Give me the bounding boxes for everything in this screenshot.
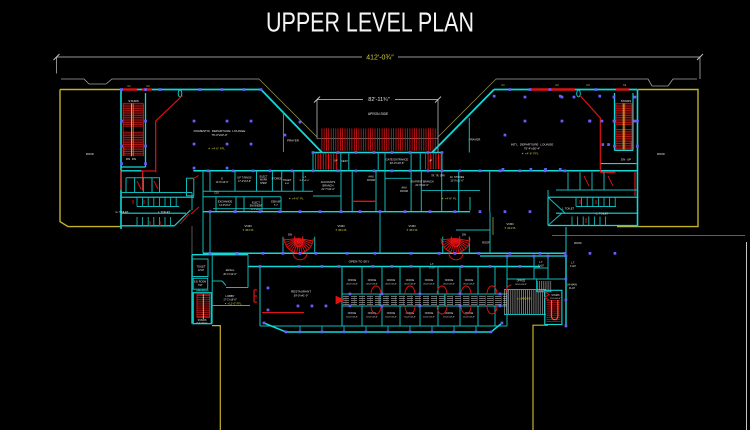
svg-text:20′-0″x13′-6″: 20′-0″x13′-6″ xyxy=(366,283,378,285)
svg-text:TOILET: TOILET xyxy=(283,179,292,182)
svg-text:✦ +4′-6″ PL: ✦ +4′-6″ PL xyxy=(442,197,457,201)
svg-text:✦ 344 PL: ✦ 344 PL xyxy=(504,226,516,230)
svg-text:ROOF: ROOF xyxy=(657,152,666,156)
svg-text:24′-0″x21′-0″: 24′-0″x21′-0″ xyxy=(415,184,429,187)
svg-text:L.T.: L.T. xyxy=(430,263,434,266)
svg-text:PRAYER: PRAYER xyxy=(469,138,481,142)
svg-text:C4: C4 xyxy=(623,83,627,87)
svg-text:STAIRS: STAIRS xyxy=(551,294,560,297)
svg-text:STAIRS: STAIRS xyxy=(128,99,139,103)
svg-text:DN: DN xyxy=(288,233,292,237)
svg-text:L. TOILET: L. TOILET xyxy=(158,210,171,214)
svg-text:✦ +4′-6″ PL: ✦ +4′-6″ PL xyxy=(289,197,304,201)
svg-text:13′-0″x21′-0″: 13′-0″x21′-0″ xyxy=(450,180,464,183)
svg-text:20′-0″x13′-6″: 20′-0″x13′-6″ xyxy=(463,283,475,285)
svg-text:1′x10′: 1′x10′ xyxy=(538,265,544,267)
svg-text:16′-0″x13′-6″: 16′-0″x13′-6″ xyxy=(346,316,358,318)
svg-text:C. TOILET: C. TOILET xyxy=(596,212,609,216)
svg-text:kitchen: kitchen xyxy=(226,268,235,272)
svg-text:TOILET: TOILET xyxy=(196,265,205,269)
svg-text:59′-0″x41′-0″: 59′-0″x41′-0″ xyxy=(294,293,309,297)
svg-text:16′-0″x13′-6″: 16′-0″x13′-6″ xyxy=(404,316,416,318)
svg-text:GATE ENTRANCE: GATE ENTRANCE xyxy=(386,158,409,162)
svg-text:L.T.: L.T. xyxy=(539,261,543,264)
svg-text:ENGINEER: ENGINEER xyxy=(250,205,263,208)
svg-text:16′-0″x13′-6″: 16′-0″x13′-6″ xyxy=(443,316,455,318)
svg-text:1′x10″: 1′x10″ xyxy=(429,267,435,269)
svg-text:82′-11¾″: 82′-11¾″ xyxy=(368,97,390,103)
svg-text:✦ +4′-6″ FFL: ✦ +4′-6″ FFL xyxy=(521,152,539,156)
svg-text:OFFICE: OFFICE xyxy=(387,280,396,282)
svg-text:DN UP: DN UP xyxy=(621,158,631,162)
svg-text:C1: C1 xyxy=(501,83,505,87)
svg-text:STAIRS: STAIRS xyxy=(198,319,207,322)
svg-text:PRAYER: PRAYER xyxy=(287,139,299,143)
svg-text:OFFICE: OFFICE xyxy=(425,313,434,315)
svg-text:10. STORES: 10. STORES xyxy=(450,176,465,179)
svg-text:14′-9″x9′-6″: 14′-9″x9′-6″ xyxy=(219,205,231,207)
svg-text:✦ 364 PL: ✦ 364 PL xyxy=(335,228,347,232)
svg-text:D: D xyxy=(221,177,223,181)
svg-text:ROOF: ROOF xyxy=(574,241,582,245)
svg-text:UPPER LEVEL PLAN: UPPER LEVEL PLAN xyxy=(266,7,474,38)
svg-text:12′x8′: 12′x8′ xyxy=(198,269,205,272)
svg-text:LOBBY: LOBBY xyxy=(226,294,235,298)
svg-text:UP T RINGS: UP T RINGS xyxy=(237,177,252,180)
svg-text:L.T.: L.T. xyxy=(303,176,307,179)
svg-text:21′-7″x21′-0″: 21′-7″x21′-0″ xyxy=(321,188,335,191)
svg-text:20′-0″x13′-6″: 20′-0″x13′-6″ xyxy=(404,283,416,285)
svg-text:C2: C2 xyxy=(555,83,559,87)
svg-text:L. TOILET: L. TOILET xyxy=(562,207,575,211)
svg-text:17′-4″x13′-6″: 17′-4″x13′-6″ xyxy=(238,181,251,183)
svg-text:G. TOILET: G. TOILET xyxy=(116,210,129,214)
svg-text:EXCHANGE: EXCHANGE xyxy=(218,200,233,204)
svg-text:1′x10′: 1′x10′ xyxy=(570,266,576,268)
svg-text:8′-0″x16′-0″: 8′-0″x16′-0″ xyxy=(196,323,207,325)
svg-text:20′-0″x13′-0″: 20′-0″x13′-0″ xyxy=(515,284,527,286)
svg-text:20′-0″x13′-6″: 20′-0″x13′-6″ xyxy=(385,283,397,285)
svg-text:✦ 364 PL: ✦ 364 PL xyxy=(242,228,254,232)
svg-text:16′-0″x13′-6″: 16′-0″x13′-6″ xyxy=(385,316,397,318)
svg-text:BRANCH: BRANCH xyxy=(323,184,334,188)
svg-text:16′-0″x13′-6″: 16′-0″x13′-6″ xyxy=(423,316,435,318)
svg-text:16′-0″x13′-6″: 16′-0″x13′-6″ xyxy=(366,316,378,318)
svg-text:C2: C2 xyxy=(146,84,150,88)
svg-text:DN DN: DN DN xyxy=(126,157,136,161)
svg-text:OFFICE: OFFICE xyxy=(387,313,396,315)
svg-text:OFFICE: OFFICE xyxy=(465,280,474,282)
svg-text:8′-0″x16′-0″: 8′-0″x16′-0″ xyxy=(550,298,561,300)
svg-text:OFFICE: OFFICE xyxy=(445,313,454,315)
svg-text:✦ +4′-6″ FFL: ✦ +4′-6″ FFL xyxy=(208,147,226,151)
svg-text:20′-1″x12′-0″: 20′-1″x12′-0″ xyxy=(223,273,237,276)
svg-text:SHOP: SHOP xyxy=(260,182,267,185)
svg-text:OPEN TO SKY: OPEN TO SKY xyxy=(349,260,370,264)
svg-text:GM FIRST BRANCH: GM FIRST BRANCH xyxy=(410,181,433,184)
svg-text:UP: UP xyxy=(429,159,433,163)
svg-text:ROOF: ROOF xyxy=(86,152,95,156)
svg-text:9′-0″x9′-0″: 9′-0″x9′-0″ xyxy=(300,180,310,182)
svg-text:OFFICE: OFFICE xyxy=(445,280,454,282)
svg-text:RESTAURANT: RESTAURANT xyxy=(291,290,311,294)
svg-text:ROOM: ROOM xyxy=(367,179,375,182)
svg-text:OFFICE: OFFICE xyxy=(406,280,415,282)
svg-text:412′-0¾″: 412′-0¾″ xyxy=(366,55,394,62)
svg-text:9′-0″: 9′-0″ xyxy=(274,205,279,207)
svg-text:20′-0″x13′-6″: 20′-0″x13′-6″ xyxy=(443,283,455,285)
svg-text:C1: C1 xyxy=(127,84,131,88)
svg-text:OFFICE: OFFICE xyxy=(425,280,434,282)
svg-text:VEST: VEST xyxy=(341,159,348,163)
svg-text:UP: UP xyxy=(334,159,338,163)
svg-text:ROOM: ROOM xyxy=(400,190,408,193)
svg-text:14′-0″x13′-6″: 14′-0″x13′-6″ xyxy=(216,182,229,184)
svg-text:8′x9′: 8′x9′ xyxy=(285,183,290,185)
svg-text:ROOF: ROOF xyxy=(482,241,490,245)
svg-text:75′-0″x63′-0″: 75′-0″x63′-0″ xyxy=(211,133,227,137)
svg-text:STORES: STORES xyxy=(272,178,282,181)
svg-text:ESB ASF: ESB ASF xyxy=(271,201,281,204)
svg-text:OFFICE: OFFICE xyxy=(348,313,357,315)
svg-text:17′-1″x16′-0″: 17′-1″x16′-0″ xyxy=(223,299,237,302)
svg-text:20′-0″x13′-6″: 20′-0″x13′-6″ xyxy=(346,283,358,285)
svg-text:ACCOUNTS: ACCOUNTS xyxy=(321,180,336,184)
svg-text:E.B. ROOM: E.B. ROOM xyxy=(194,282,206,284)
svg-text:7′x8′: 7′x8′ xyxy=(198,285,203,287)
svg-text:L.T.: L.T. xyxy=(571,262,575,265)
svg-text:TR. TR. OPR: TR. TR. OPR xyxy=(431,176,445,178)
svg-text:C10: C10 xyxy=(214,192,219,195)
svg-text:STAIRS: STAIRS xyxy=(621,99,632,103)
svg-text:30′-0″x10′-6″: 30′-0″x10′-6″ xyxy=(390,161,405,165)
svg-text:«« LANDING: «« LANDING xyxy=(517,297,532,300)
svg-text:OFFICE: OFFICE xyxy=(368,280,377,282)
svg-text:FLAT: FLAT xyxy=(569,287,575,290)
svg-text:20′-0″x13′-6″: 20′-0″x13′-6″ xyxy=(423,283,435,285)
svg-text:16′-0″x13′-6″: 16′-0″x13′-6″ xyxy=(463,316,475,318)
svg-text:75′-4″x50′-4″: 75′-4″x50′-4″ xyxy=(524,146,540,150)
svg-text:✦ 364 PL: ✦ 364 PL xyxy=(406,228,418,232)
svg-text:C3: C3 xyxy=(586,83,590,87)
svg-text:APRON SIDE: APRON SIDE xyxy=(368,112,389,116)
svg-text:✦ +12′-0″ FFL: ✦ +12′-0″ FFL xyxy=(225,301,242,305)
svg-text:OFFICE: OFFICE xyxy=(517,281,526,283)
svg-text:OFFICE: OFFICE xyxy=(348,280,357,282)
svg-text:DN: DN xyxy=(462,233,466,237)
